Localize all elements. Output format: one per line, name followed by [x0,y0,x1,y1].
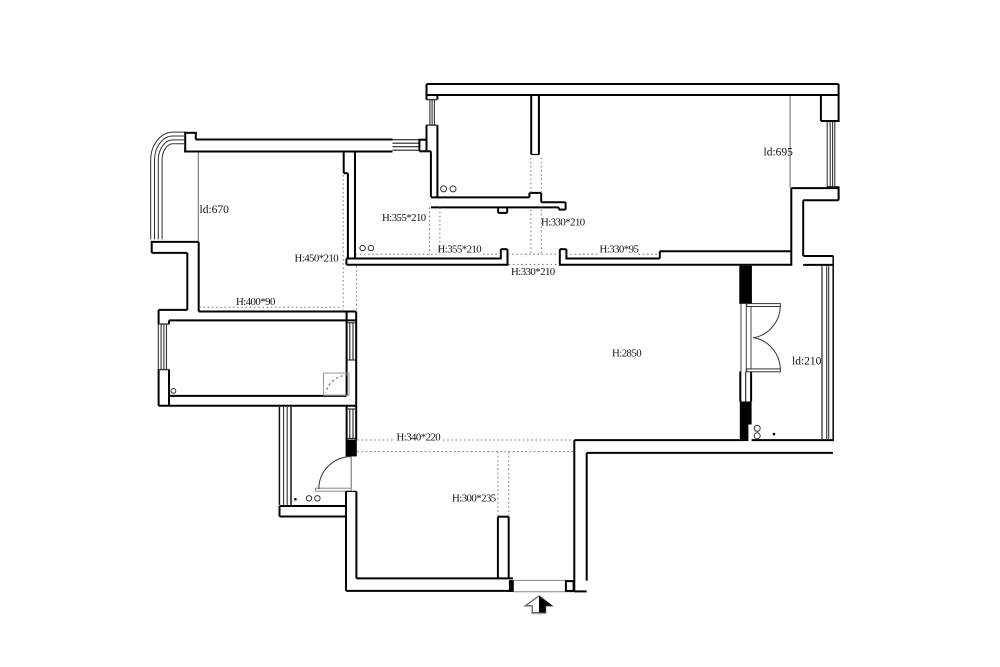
svg-text:H:330*210: H:330*210 [541,217,585,229]
svg-text:ld:210: ld:210 [792,356,822,368]
svg-text:H:340*220: H:340*220 [397,432,441,444]
svg-text:ld:695: ld:695 [764,147,794,159]
svg-text:H:355*210: H:355*210 [438,244,482,256]
svg-text:H:330*95: H:330*95 [600,244,639,256]
svg-text:H:2850: H:2850 [612,348,641,360]
svg-text:H:300*235: H:300*235 [452,493,496,505]
svg-text:H:355*210: H:355*210 [382,212,426,224]
svg-text:ld:670: ld:670 [200,204,230,216]
svg-text:H:330*210: H:330*210 [511,266,555,278]
svg-text:H:450*210: H:450*210 [295,253,339,265]
svg-text:H:400*90: H:400*90 [236,296,275,308]
